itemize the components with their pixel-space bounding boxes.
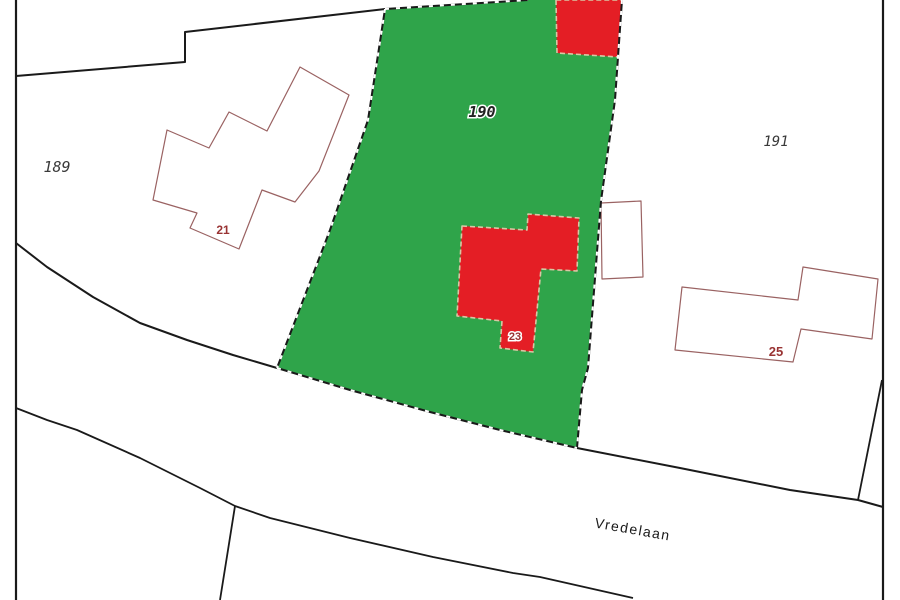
house-number-21: 21 [216,223,230,237]
map-canvas: 189190191212325Vredelaan [0,0,900,600]
road-top-edge-west [16,243,277,368]
boundary-corner-diagonal [858,380,882,500]
cadastral-map: 189190191212325Vredelaan [0,0,900,600]
parcel-label-189: 189 [43,158,70,176]
street-label-vredelaan: Vredelaan [594,515,672,544]
house-number-23: 23 [509,331,521,343]
parcel-label-190: 190 [468,103,495,121]
building-191-annex-outline [601,201,643,279]
road-top-edge-east [577,448,883,507]
parcel-label-191: 191 [763,134,788,150]
building-top-red [556,0,622,57]
house-number-25: 25 [769,344,783,359]
building-21-outline [153,67,349,249]
boundary-branch-south [220,506,235,600]
